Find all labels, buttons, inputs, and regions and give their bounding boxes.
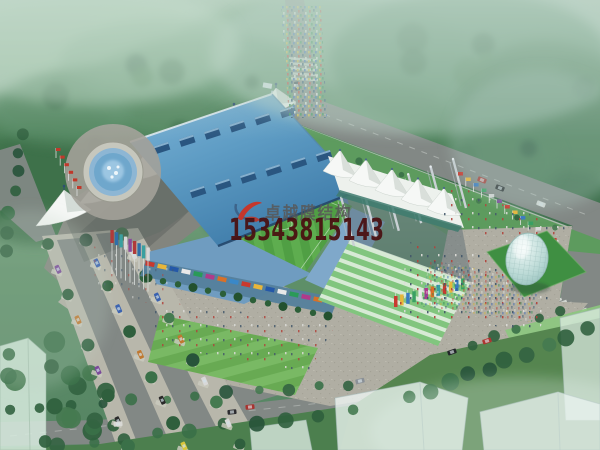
stadium-rendering: 卓越膜结构 15343815143 — [0, 0, 600, 450]
rendering-scene — [0, 0, 600, 450]
